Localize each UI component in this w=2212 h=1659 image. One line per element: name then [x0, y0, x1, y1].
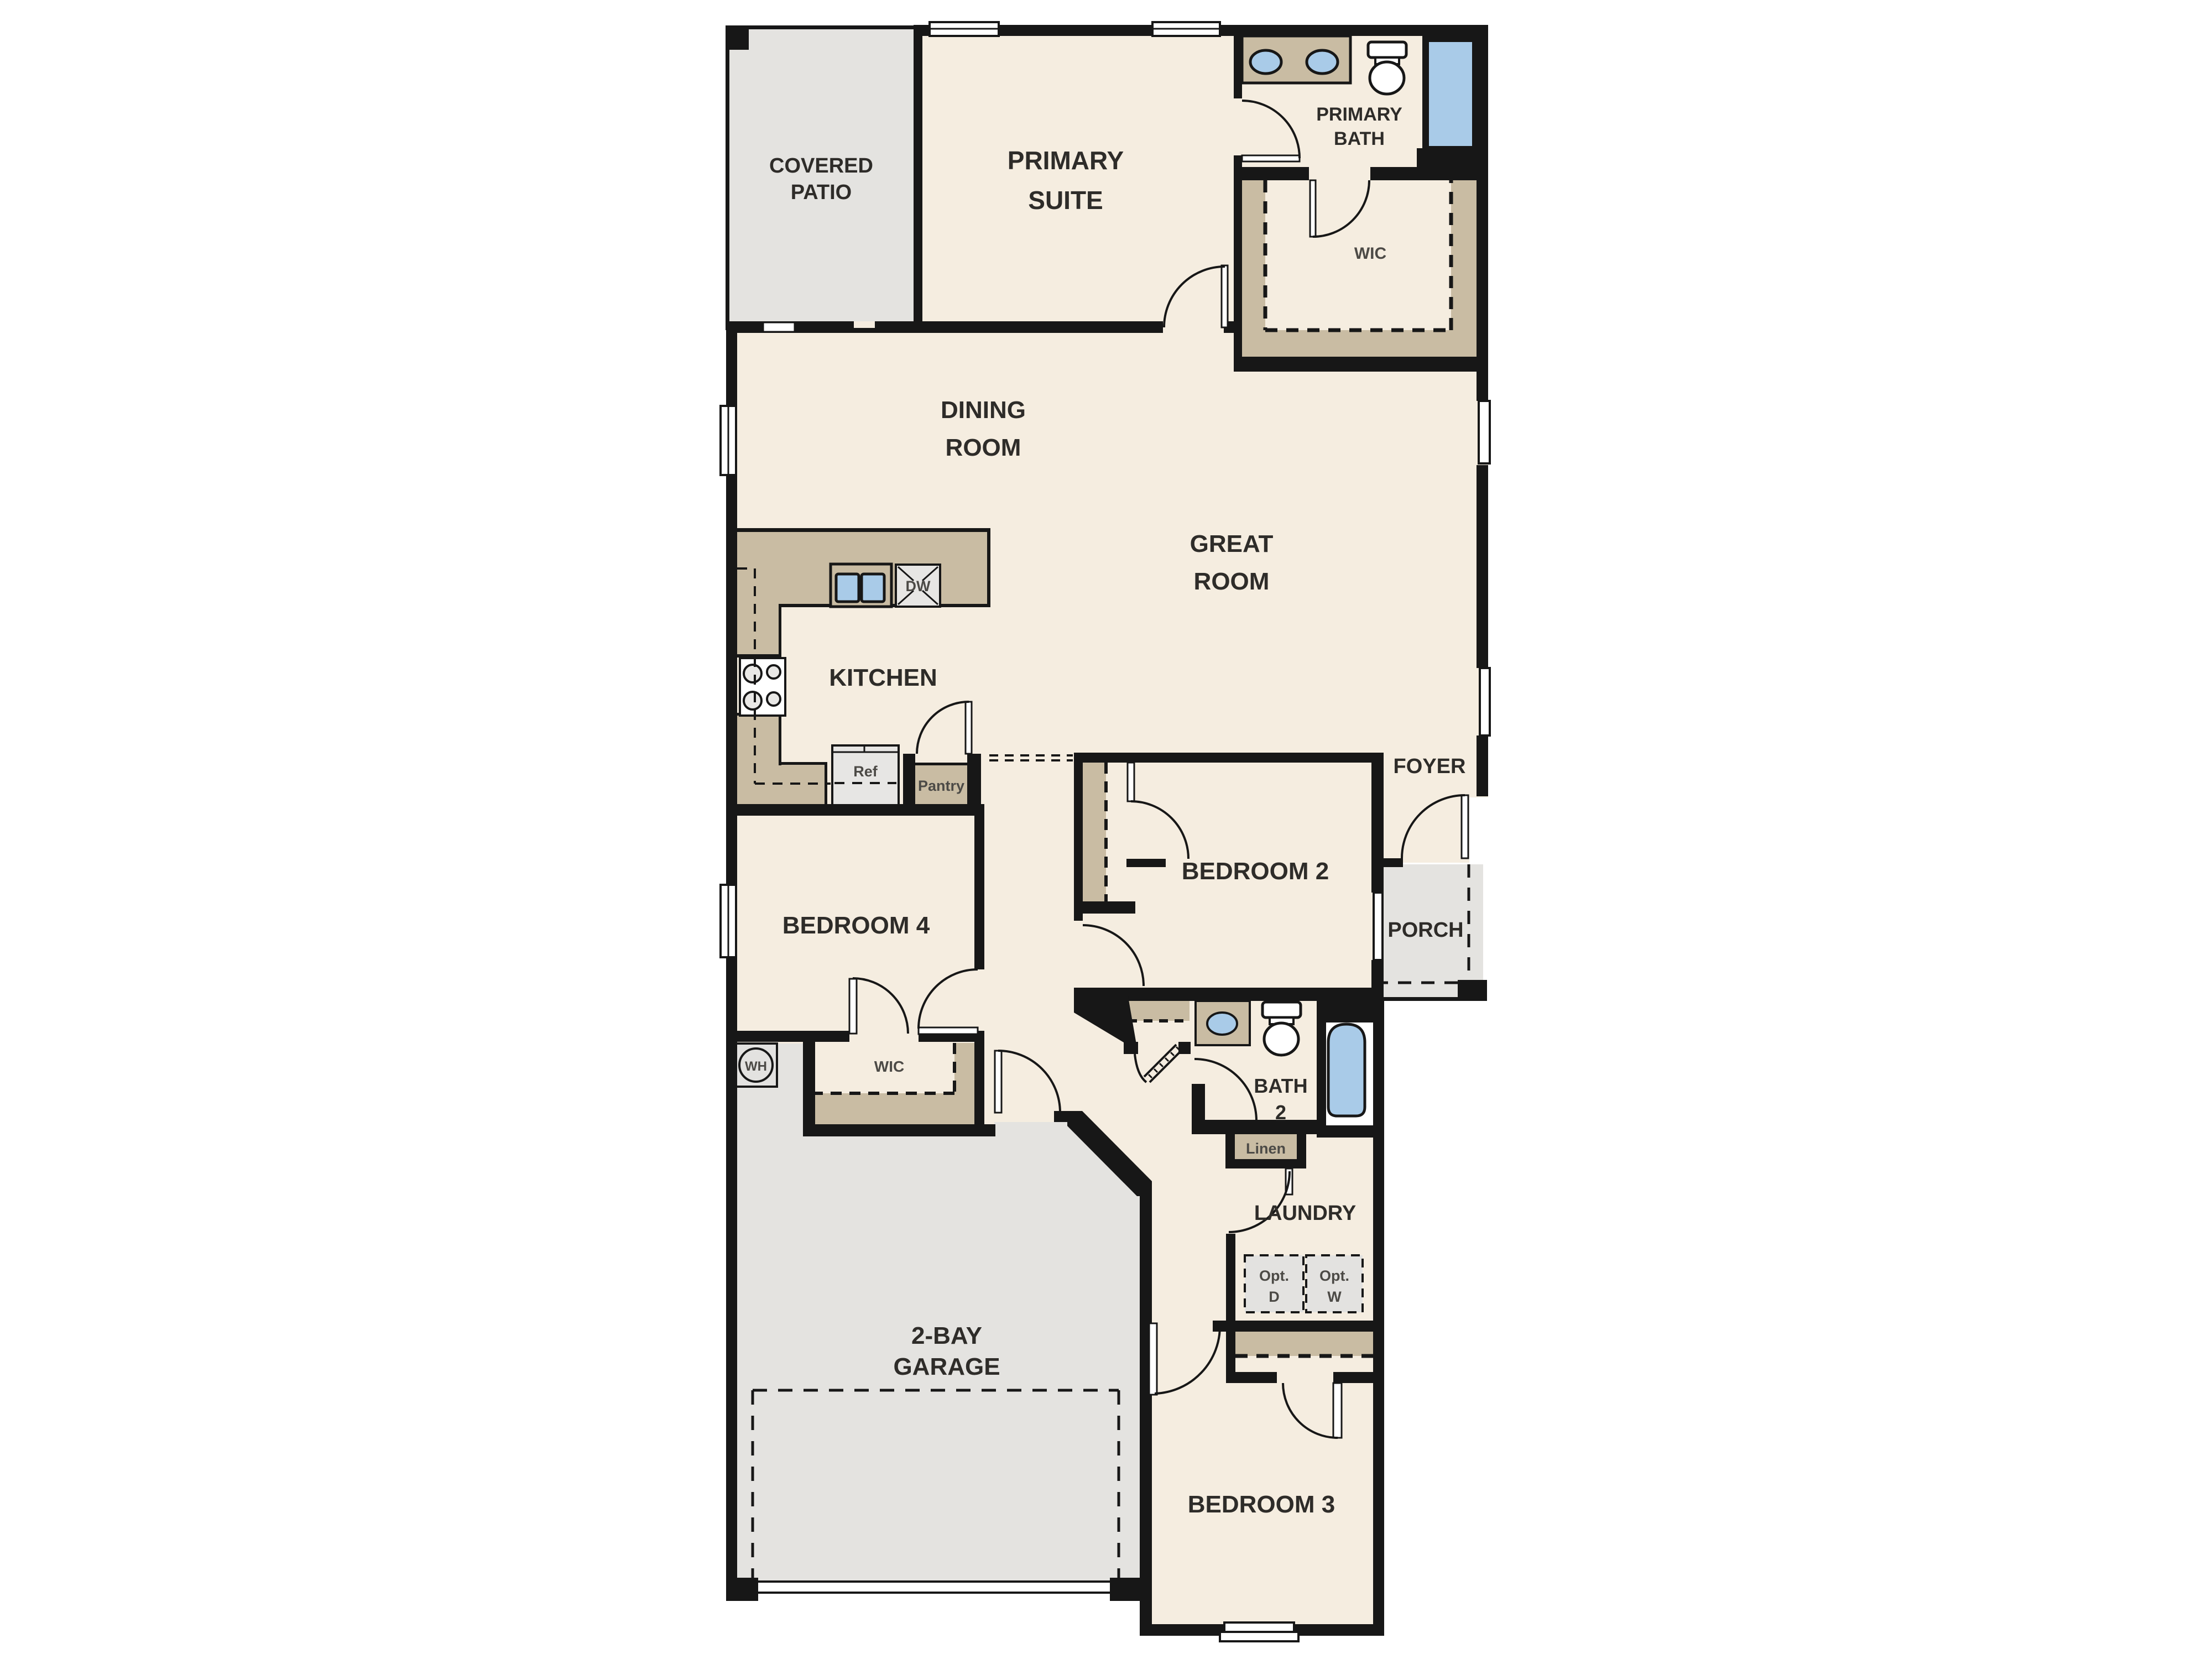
- svg-text:GREAT: GREAT: [1190, 530, 1274, 557]
- svg-text:ROOM: ROOM: [946, 434, 1021, 461]
- svg-text:WIC: WIC: [874, 1058, 904, 1075]
- svg-text:PATIO: PATIO: [791, 181, 852, 204]
- svg-text:GARAGE: GARAGE: [893, 1353, 1000, 1380]
- svg-text:PRIMARY: PRIMARY: [1008, 146, 1124, 175]
- svg-text:2-BAY: 2-BAY: [911, 1322, 982, 1349]
- svg-text:PRIMARY: PRIMARY: [1316, 104, 1402, 125]
- svg-text:Linen: Linen: [1246, 1140, 1286, 1157]
- svg-text:SUITE: SUITE: [1028, 186, 1103, 215]
- svg-text:KITCHEN: KITCHEN: [829, 664, 937, 691]
- svg-text:BATH: BATH: [1254, 1074, 1307, 1097]
- svg-text:FOYER: FOYER: [1394, 755, 1466, 778]
- svg-text:DINING: DINING: [941, 397, 1026, 424]
- svg-text:LAUNDRY: LAUNDRY: [1254, 1202, 1356, 1225]
- svg-text:COVERED: COVERED: [769, 154, 873, 178]
- svg-text:BEDROOM 2: BEDROOM 2: [1182, 858, 1329, 885]
- svg-text:WIC: WIC: [1354, 244, 1386, 263]
- svg-text:WH: WH: [745, 1059, 767, 1074]
- svg-text:W: W: [1327, 1288, 1342, 1305]
- svg-text:BATH: BATH: [1334, 128, 1385, 149]
- svg-text:ROOM: ROOM: [1194, 568, 1270, 595]
- svg-text:BEDROOM 3: BEDROOM 3: [1188, 1491, 1335, 1518]
- svg-text:Pantry: Pantry: [918, 778, 964, 794]
- svg-text:Opt.: Opt.: [1259, 1267, 1289, 1284]
- svg-text:Ref: Ref: [853, 763, 878, 780]
- svg-text:D: D: [1269, 1288, 1280, 1305]
- svg-text:2: 2: [1275, 1101, 1286, 1124]
- svg-text:Opt.: Opt.: [1319, 1267, 1349, 1284]
- svg-text:DW: DW: [906, 578, 931, 594]
- svg-text:BEDROOM 4: BEDROOM 4: [782, 912, 930, 939]
- svg-text:PORCH: PORCH: [1387, 919, 1463, 942]
